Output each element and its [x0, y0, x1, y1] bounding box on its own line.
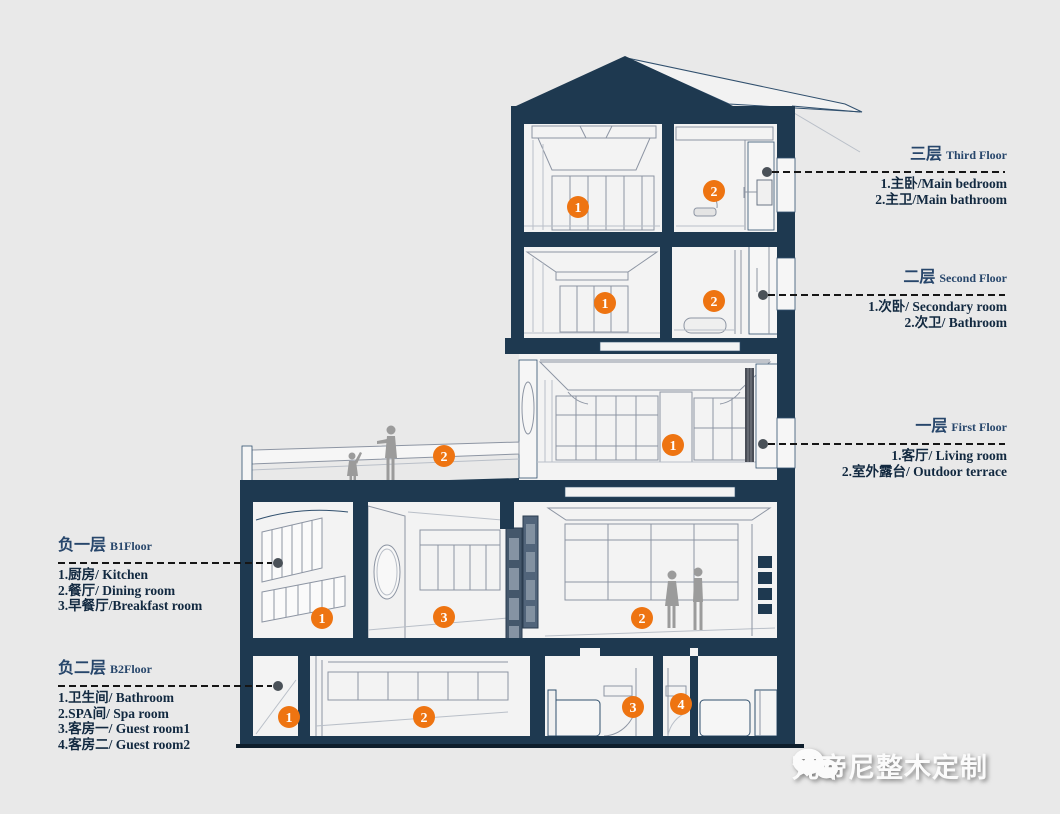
marker-third-floor-room1: 1 [567, 196, 589, 218]
floor-title: 一层 First Floor [842, 418, 1007, 436]
svg-text:2: 2 [639, 612, 646, 627]
marker-third-floor-room2: 2 [703, 180, 725, 202]
floor-item: 2.次卫/ Bathroom [868, 315, 1007, 331]
floor-label-second: 二层 Second Floor 1.次卧/ Secondary room 2.次… [868, 269, 1007, 330]
floor-title: 二层 Second Floor [868, 269, 1007, 287]
leader-dot-first-floor [758, 439, 768, 449]
floor-label-third: 三层 Third Floor 1.主卧/Main bedroom 2.主卫/Ma… [875, 146, 1007, 207]
floor-label-b2: 负二层 B2Floor 1.卫生间/ Bathroom 2.SPA间/ Spa … [58, 660, 190, 752]
floor-item: 1.次卧/ Secondary room [868, 299, 1007, 315]
floor-title: 三层 Third Floor [875, 146, 1007, 164]
floor-title: 负一层 B1Floor [58, 537, 202, 555]
marker-b1-breakfast: 3 [433, 606, 455, 628]
marker-second-floor-room1: 1 [594, 292, 616, 314]
floor-label-first: 一层 First Floor 1.客厅/ Living room 2.室外露台/… [842, 418, 1007, 479]
marker-b2-bathroom: 1 [278, 706, 300, 728]
floor-item: 2.主卫/Main bathroom [875, 192, 1007, 208]
floor-item: 1.厨房/ Kitchen [58, 567, 202, 583]
carved-screen [506, 516, 538, 645]
leader-dot-third-floor [762, 167, 772, 177]
svg-text:1: 1 [319, 612, 326, 627]
svg-text:2: 2 [441, 450, 448, 465]
floor-item: 2.SPA间/ Spa room [58, 706, 190, 722]
marker-b2-guest2: 4 [670, 693, 692, 715]
floor-item: 1.卫生间/ Bathroom [58, 690, 190, 706]
svg-text:3: 3 [441, 611, 448, 626]
wechat-icon [792, 746, 840, 784]
section-diagram-page: 1 2 1 2 1 2 1 2 3 1 2 3 4 三层 Third Floor [0, 0, 1060, 814]
floor-item: 3.早餐厅/Breakfast room [58, 598, 202, 614]
marker-b1-kitchen: 1 [311, 607, 333, 629]
floor-title: 负二层 B2Floor [58, 660, 190, 678]
svg-text:2: 2 [421, 711, 428, 726]
floor-item: 4.客房二/ Guest room2 [58, 737, 190, 753]
marker-b1-dining: 2 [631, 607, 653, 629]
floor-item: 1.主卧/Main bedroom [875, 176, 1007, 192]
svg-text:1: 1 [670, 439, 677, 454]
leader-dot-b1-floor [273, 558, 283, 568]
svg-text:4: 4 [678, 698, 685, 713]
terrace-child-figure [347, 452, 362, 484]
floor-item: 2.室外露台/ Outdoor terrace [842, 464, 1007, 480]
svg-text:1: 1 [286, 711, 293, 726]
marker-b2-guest1: 3 [622, 696, 644, 718]
marker-second-floor-room2: 2 [703, 290, 725, 312]
svg-text:1: 1 [602, 297, 609, 312]
svg-text:3: 3 [630, 701, 637, 716]
floor-label-b1: 负一层 B1Floor 1.厨房/ Kitchen 2.餐厅/ Dining r… [58, 537, 202, 614]
marker-b2-spa: 2 [413, 706, 435, 728]
leader-dot-second-floor [758, 290, 768, 300]
svg-text:2: 2 [711, 185, 718, 200]
floor-item: 1.客厅/ Living room [842, 448, 1007, 464]
floor-item: 3.客房一/ Guest room1 [58, 721, 190, 737]
svg-text:1: 1 [575, 201, 582, 216]
floor-item: 2.餐厅/ Dining room [58, 583, 202, 599]
brand-watermark: 梵帝尼整木定制 [792, 746, 988, 785]
svg-text:2: 2 [711, 295, 718, 310]
marker-first-floor-living: 1 [662, 434, 684, 456]
marker-terrace: 2 [433, 445, 455, 467]
leader-dot-b2-floor [273, 681, 283, 691]
